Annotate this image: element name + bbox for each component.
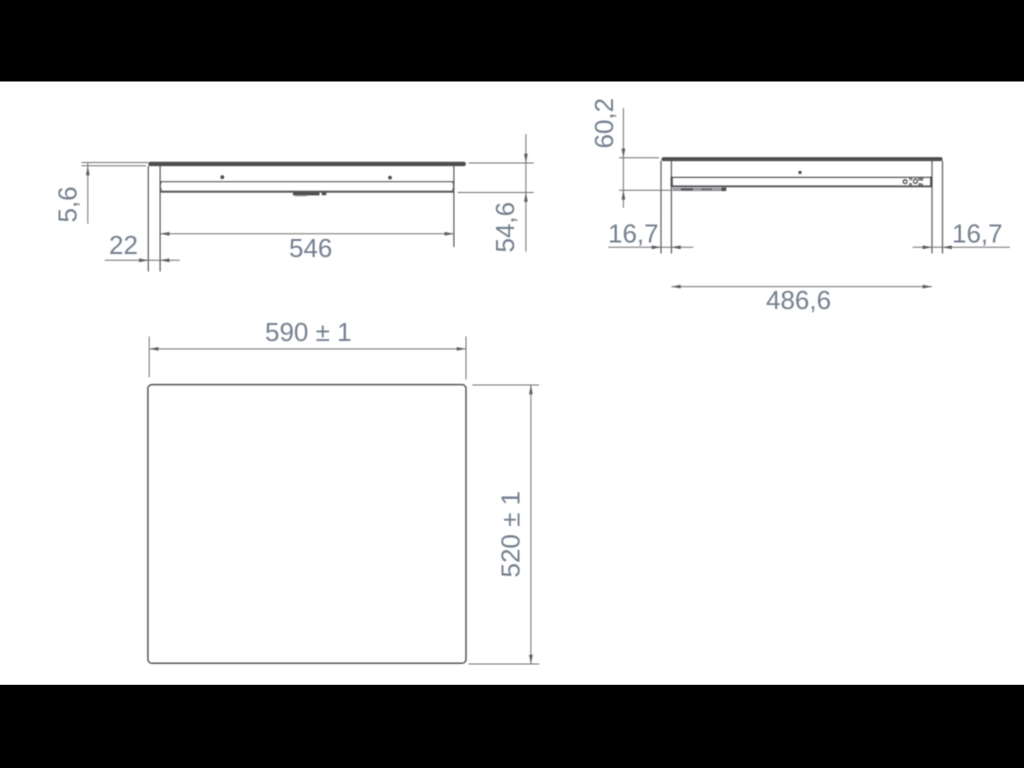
svg-text:5,6: 5,6 bbox=[53, 186, 83, 222]
svg-text:546: 546 bbox=[289, 233, 332, 263]
svg-text:486,6: 486,6 bbox=[766, 285, 831, 315]
svg-text:520 ± 1: 520 ± 1 bbox=[496, 491, 526, 578]
svg-text:54,6: 54,6 bbox=[490, 202, 520, 253]
svg-text:16,7: 16,7 bbox=[952, 219, 1003, 249]
svg-text:22: 22 bbox=[109, 230, 138, 260]
svg-text:590 ± 1: 590 ± 1 bbox=[265, 317, 352, 347]
svg-text:60,2: 60,2 bbox=[589, 98, 619, 149]
svg-text:16,7: 16,7 bbox=[608, 219, 659, 249]
